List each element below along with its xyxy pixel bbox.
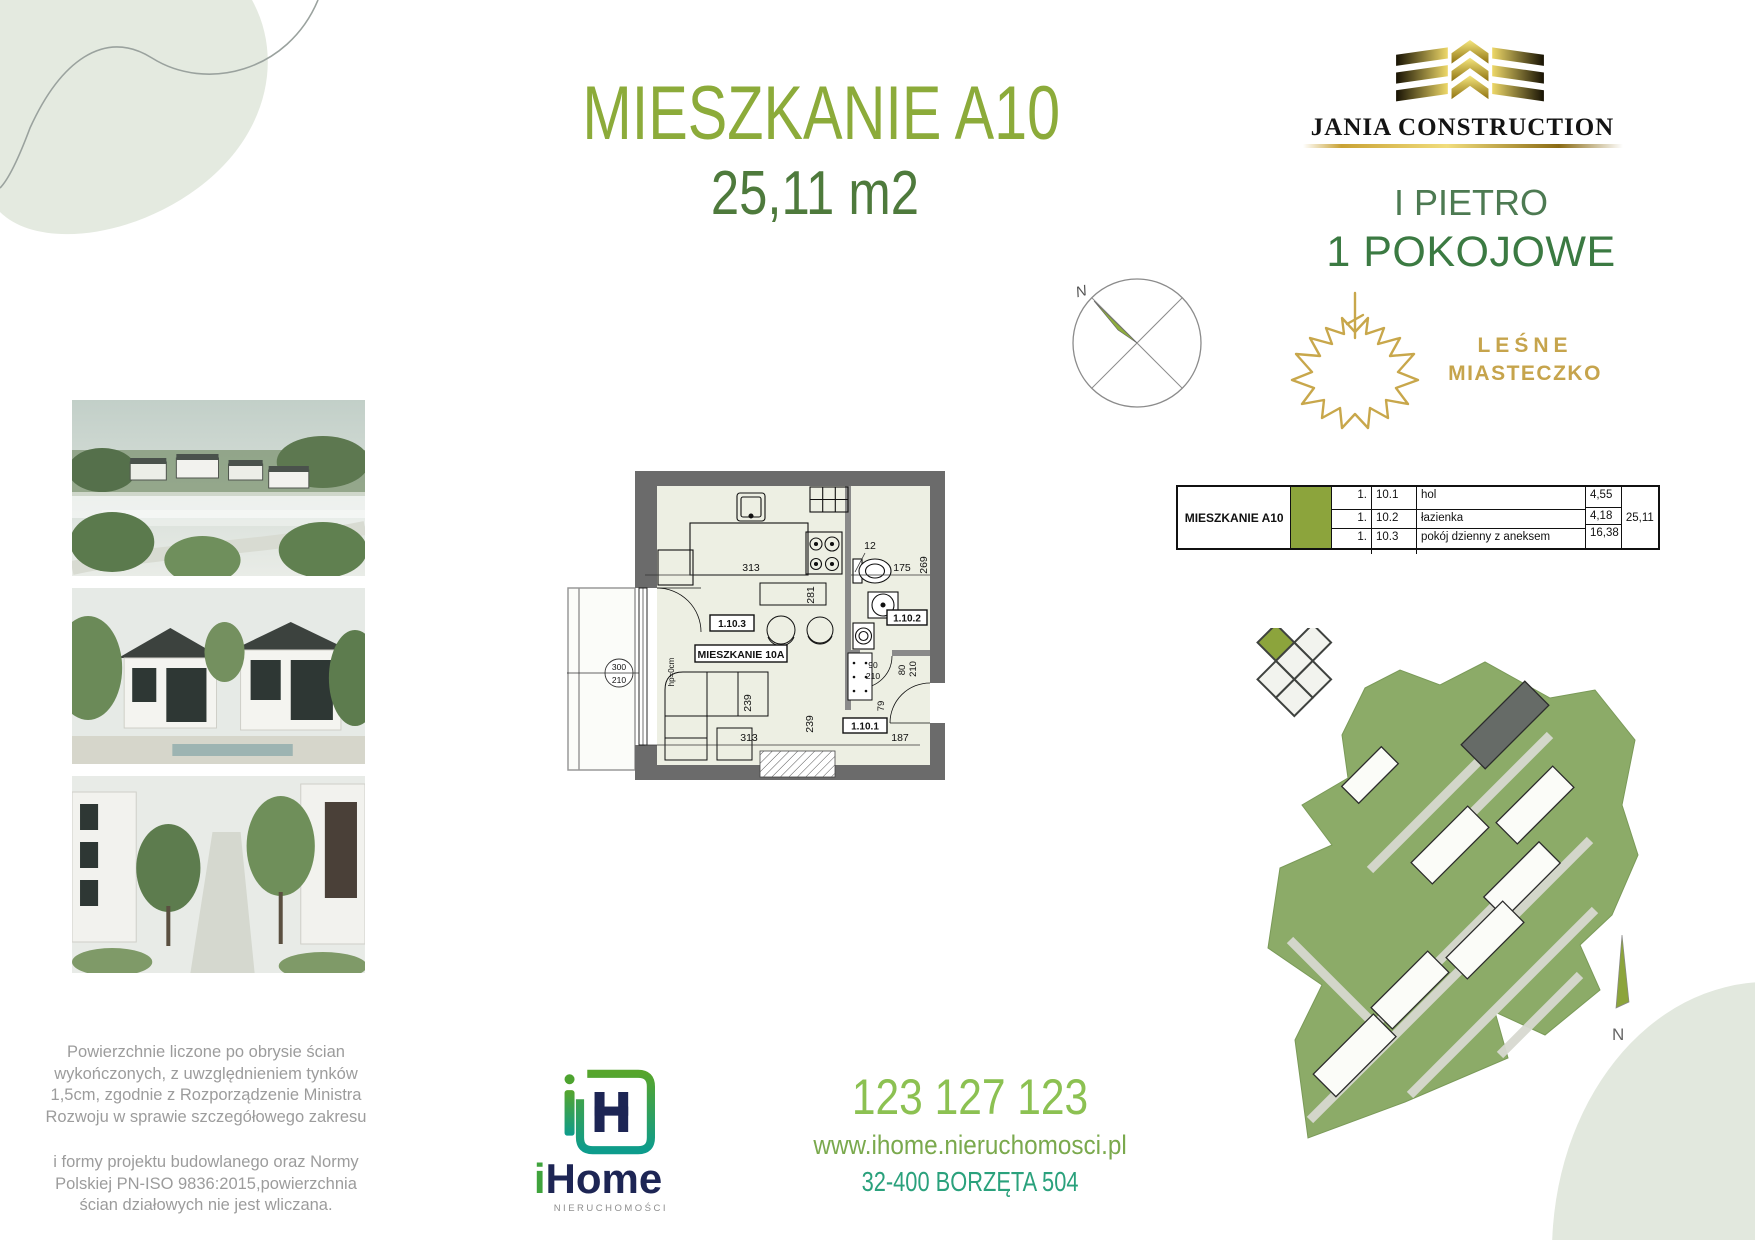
svg-text:175: 175 — [893, 562, 911, 574]
table-row: 1. 10.2 łazienka — [1332, 510, 1585, 529]
floor-plan: 313 12 175 269 281 239 239 79 80 210 313… — [555, 425, 975, 780]
row-level: 1. — [1332, 487, 1372, 509]
render-image-1 — [72, 400, 365, 576]
svg-text:80: 80 — [897, 665, 908, 676]
wordmark-home: Home — [545, 1155, 662, 1202]
gold-underline — [1303, 144, 1623, 148]
svg-text:239: 239 — [742, 694, 754, 712]
svg-text:281: 281 — [805, 586, 817, 604]
row-number: 10.3 — [1372, 529, 1417, 554]
row-area: 4,55 — [1586, 487, 1621, 508]
row-level: 1. — [1332, 529, 1372, 554]
address-text: 32-400 BORZĘTA 504 — [790, 1166, 1150, 1198]
compass-rose: N — [1068, 274, 1208, 414]
floor-label: I PIETRO — [1311, 182, 1631, 224]
svg-text:313: 313 — [742, 562, 760, 574]
render-image-2 — [72, 588, 365, 764]
bathroom-code: 1.10.2 — [893, 614, 921, 625]
svg-text:313: 313 — [740, 732, 758, 744]
svg-text:90: 90 — [868, 660, 878, 670]
ihome-i-stem — [565, 1090, 575, 1135]
row-room-name: pokój dzienny z aneksem — [1417, 529, 1585, 554]
decor-top-left — [0, 0, 340, 260]
svg-text:210: 210 — [908, 661, 919, 677]
flyer-page: MIESZKANIE A10 25,11 m2 — [0, 0, 1755, 1240]
table-total-area: 25,11 — [1621, 487, 1658, 548]
ihome-h-mark — [595, 1092, 629, 1132]
table-color-key — [1291, 487, 1332, 548]
phone-number: 123 127 123 — [790, 1068, 1150, 1126]
svg-text:239: 239 — [804, 715, 816, 733]
corridor-hatch — [760, 751, 835, 777]
row-number: 10.1 — [1372, 487, 1417, 509]
disclaimer-text: Powierzchnie liczone po obrysie ścian wy… — [38, 1042, 374, 1240]
row-room-name: łazienka — [1417, 510, 1585, 528]
ihome-i-dot — [565, 1074, 575, 1084]
render-image-3 — [72, 776, 365, 973]
leaf-icon — [1280, 288, 1430, 458]
site-north-label: N — [1612, 1025, 1624, 1044]
ihome-wordmark: iHome — [518, 1158, 678, 1200]
balcony-door-size: 300 210 — [605, 659, 633, 687]
table-row: 1. 10.1 hol — [1332, 487, 1585, 510]
svg-text:210: 210 — [612, 675, 626, 685]
page-title: MIESZKANIE A10 — [515, 70, 1115, 157]
table-apartment-name: MIESZKANIE A10 — [1178, 487, 1291, 548]
ihome-tagline: NIERUCHOMOŚCI — [518, 1203, 668, 1214]
row-area: 16,38 — [1586, 525, 1621, 548]
row-area: 4,18 — [1586, 508, 1621, 525]
disclaimer-paragraph-2: i formy projektu budowlanego oraz Normy … — [38, 1152, 374, 1217]
svg-text:79: 79 — [876, 701, 887, 712]
row-number: 10.2 — [1372, 510, 1417, 528]
ihome-logo — [560, 1062, 660, 1162]
table-row: 1. 10.3 pokój dzienny z aneksem — [1332, 529, 1585, 554]
svg-text:12: 12 — [864, 540, 876, 552]
compass-north-label: N — [1074, 282, 1089, 301]
svg-text:hp=0cm: hp=0cm — [667, 657, 676, 686]
living-room-code: 1.10.3 — [718, 619, 746, 630]
svg-text:300: 300 — [612, 662, 626, 672]
site-plan: N — [1250, 640, 1650, 1140]
svg-text:187: 187 — [891, 732, 909, 744]
disclaimer-paragraph-1: Powierzchnie liczone po obrysie ścian wy… — [38, 1042, 374, 1128]
row-level: 1. — [1332, 510, 1372, 528]
site-north-marker: N — [1612, 935, 1629, 1044]
wordmark-i: i — [534, 1155, 546, 1202]
svg-text:210: 210 — [866, 671, 880, 681]
estate-name-line2: MIASTECZKO — [1430, 362, 1620, 386]
jania-logo-icon — [1385, 34, 1555, 114]
room-type-label: 1 POKOJOWE — [1311, 228, 1631, 277]
svg-text:269: 269 — [918, 556, 930, 574]
unit-label: MIESZKANIE 10A — [698, 649, 785, 661]
area-table: MIESZKANIE A10 1. 10.1 hol 1. 10.2 łazie… — [1176, 485, 1660, 550]
row-room-name: hol — [1417, 487, 1585, 509]
apartment-area: 25,11 m2 — [515, 158, 1115, 229]
estate-name-line1: LEŚNE — [1430, 334, 1620, 358]
website-link[interactable]: www.ihome.nieruchomosci.pl — [790, 1130, 1150, 1161]
developer-name: JANIA CONSTRUCTION — [1290, 114, 1635, 142]
hall-code: 1.10.1 — [851, 722, 879, 733]
